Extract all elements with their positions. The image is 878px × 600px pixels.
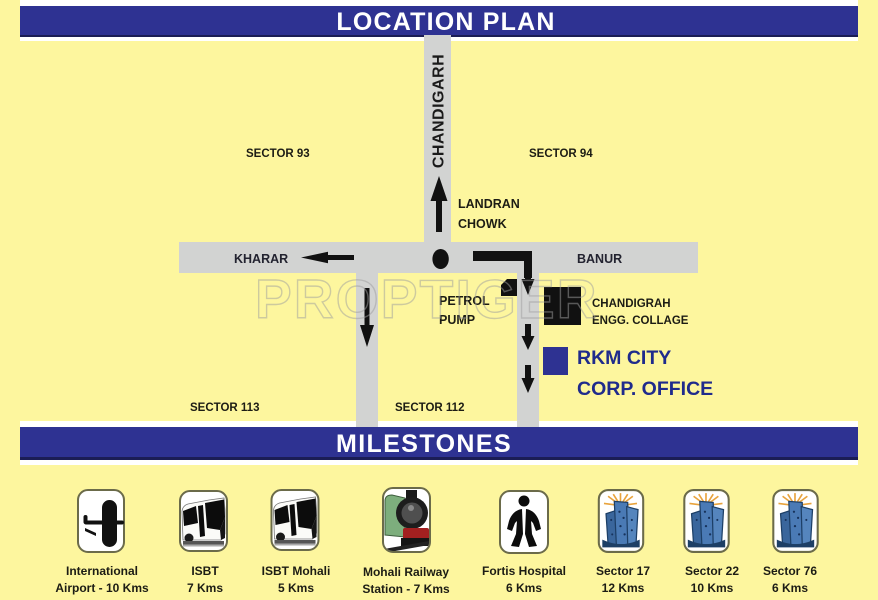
svg-text:PROPTIGER: PROPTIGER — [255, 268, 599, 330]
